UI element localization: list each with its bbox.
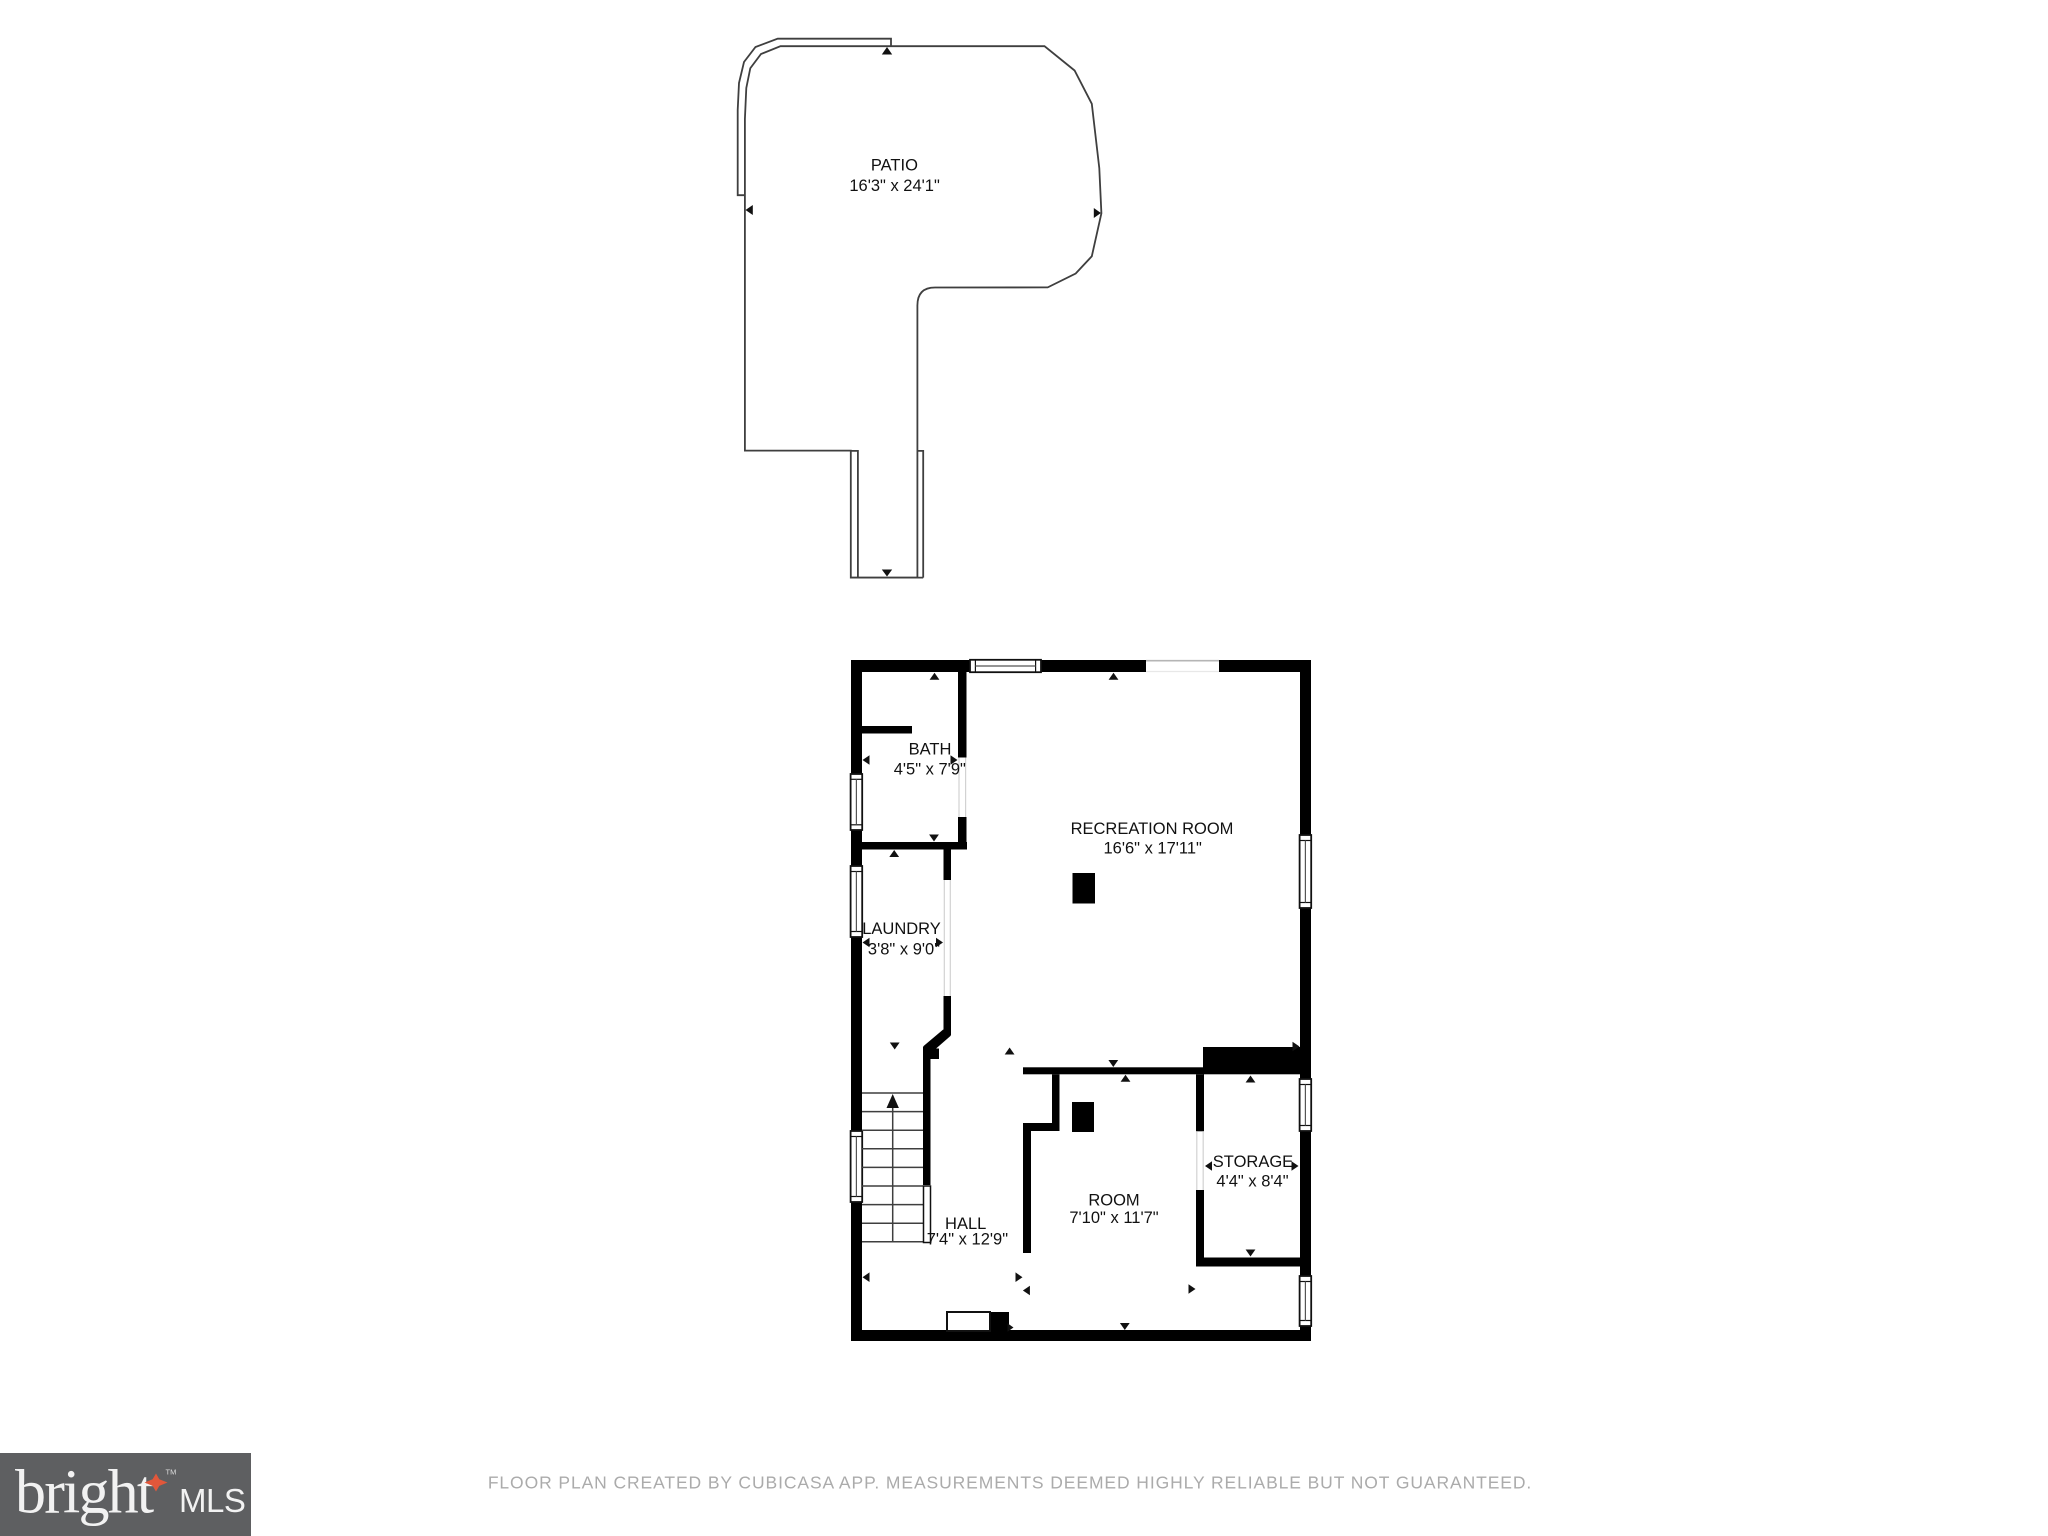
svg-text:STORAGE: STORAGE [1213,1153,1293,1171]
svg-text:RECREATION ROOM: RECREATION ROOM [1071,820,1234,838]
svg-text:TM: TM [166,1468,177,1477]
svg-text:PATIO: PATIO [871,157,918,175]
svg-text:7'4" x 12'9": 7'4" x 12'9" [927,1231,1008,1249]
svg-text:16'6" x 17'11": 16'6" x 17'11" [1103,840,1202,858]
svg-text:4'4" x 8'4": 4'4" x 8'4" [1216,1173,1288,1191]
svg-text:4'5" x 7'9": 4'5" x 7'9" [894,761,966,779]
svg-text:BATH: BATH [909,741,952,759]
svg-text:ROOM: ROOM [1088,1192,1139,1210]
svg-text:FLOOR PLAN CREATED BY CUBICASA: FLOOR PLAN CREATED BY CUBICASA APP. MEAS… [488,1473,1532,1493]
svg-text:16'3" x 24'1": 16'3" x 24'1" [849,177,940,195]
svg-text:7'10" x 11'7": 7'10" x 11'7" [1069,1209,1158,1227]
svg-text:LAUNDRY: LAUNDRY [862,920,941,938]
svg-text:bright: bright [15,1459,154,1527]
svg-text:3'8" x 9'0": 3'8" x 9'0" [868,941,940,959]
svg-text:MLS: MLS [179,1482,245,1519]
